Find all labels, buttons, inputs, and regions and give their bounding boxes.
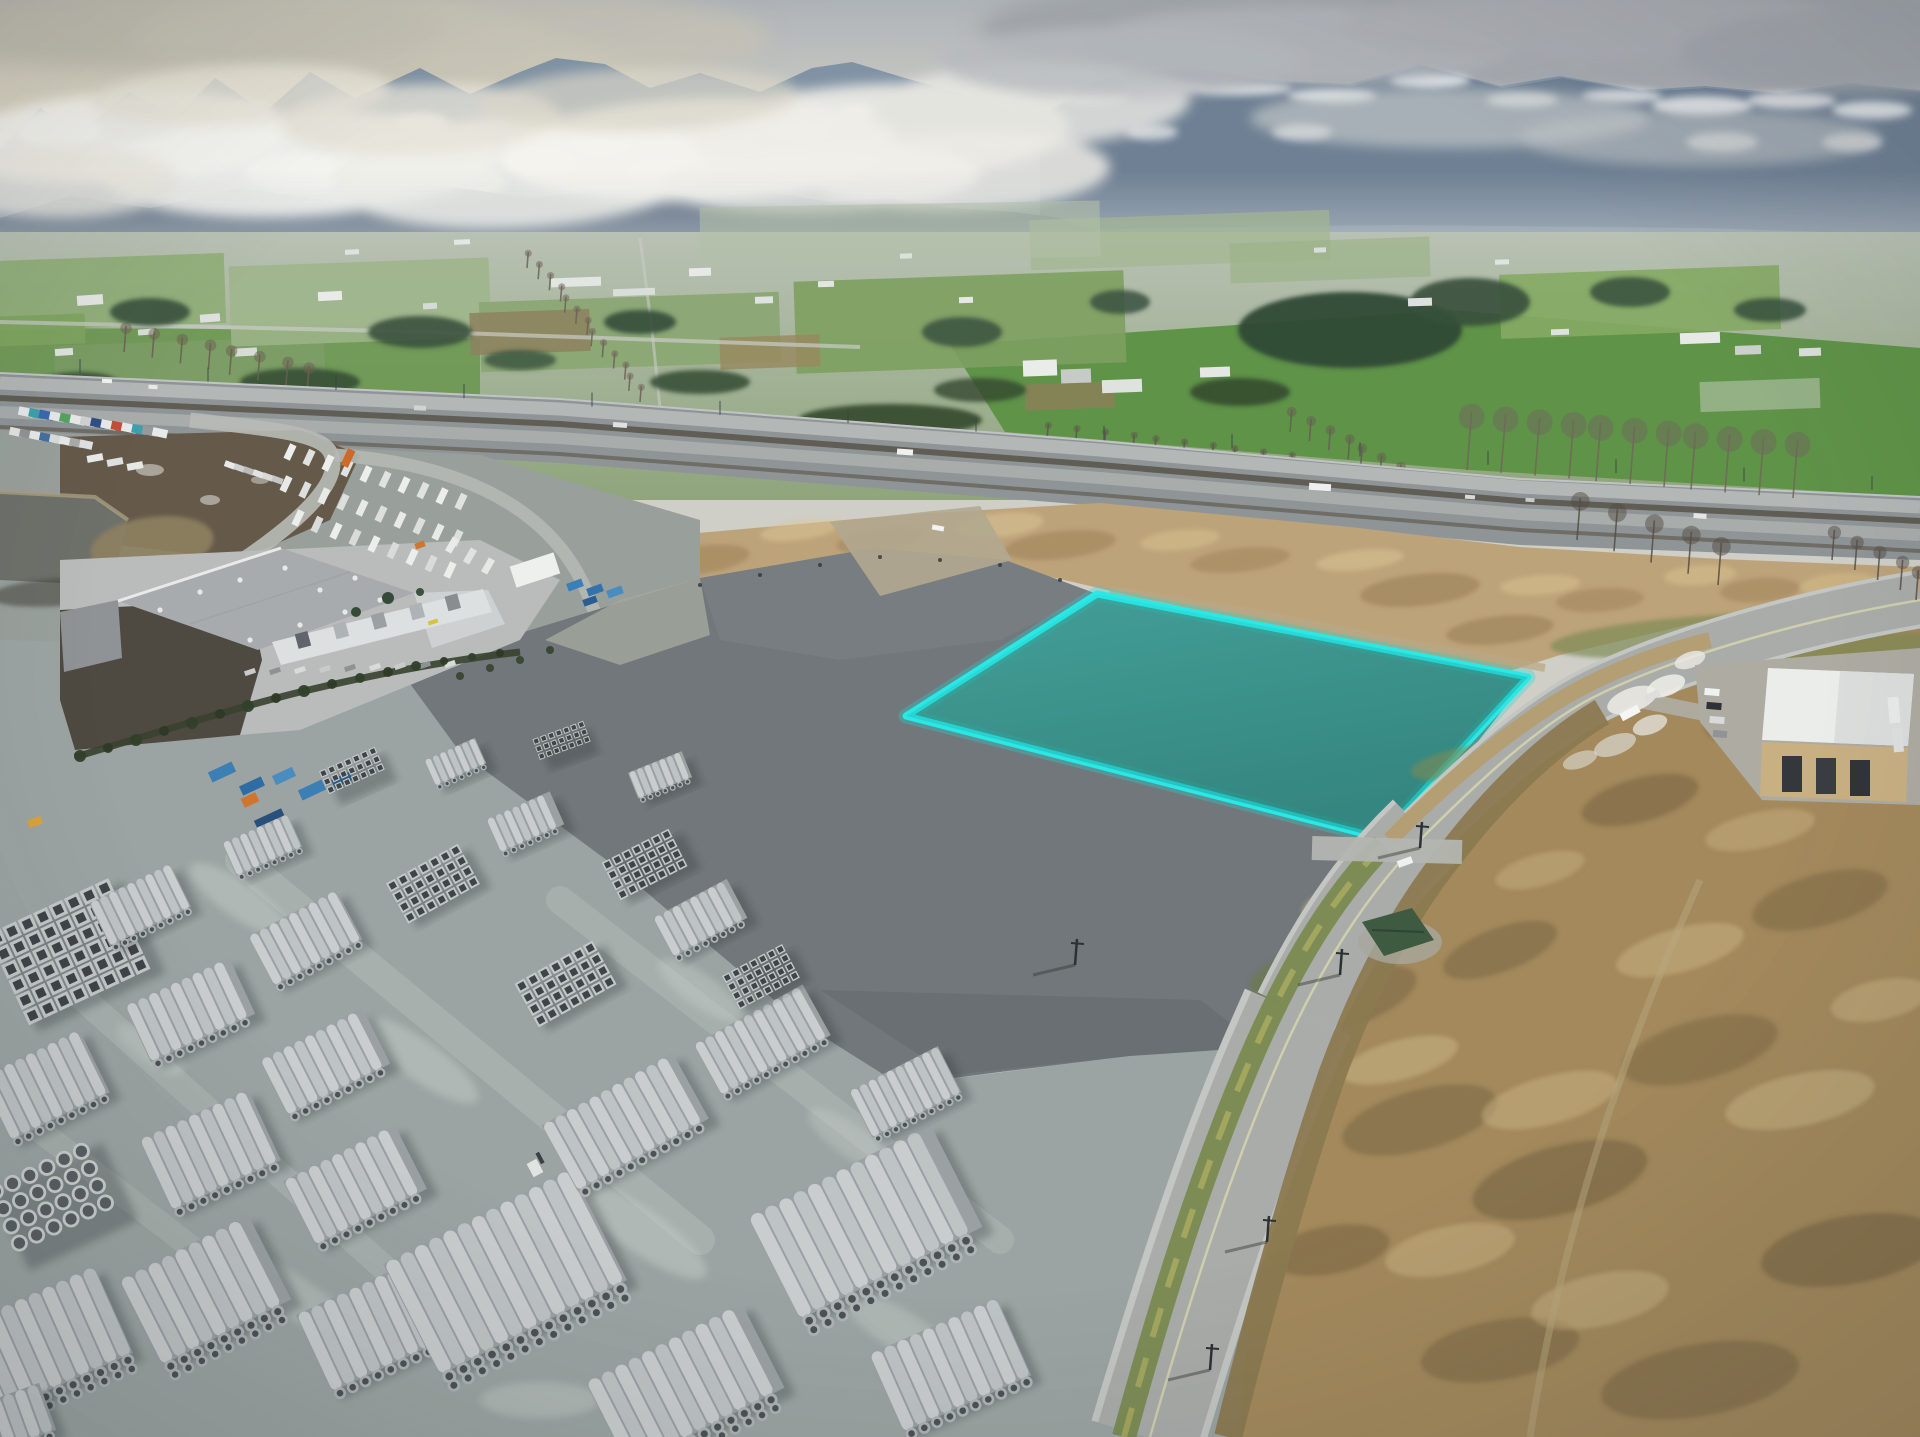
vignette: [0, 0, 1920, 1437]
aerial-photo-stage: [0, 0, 1920, 1437]
aerial-photo: [0, 0, 1920, 1437]
